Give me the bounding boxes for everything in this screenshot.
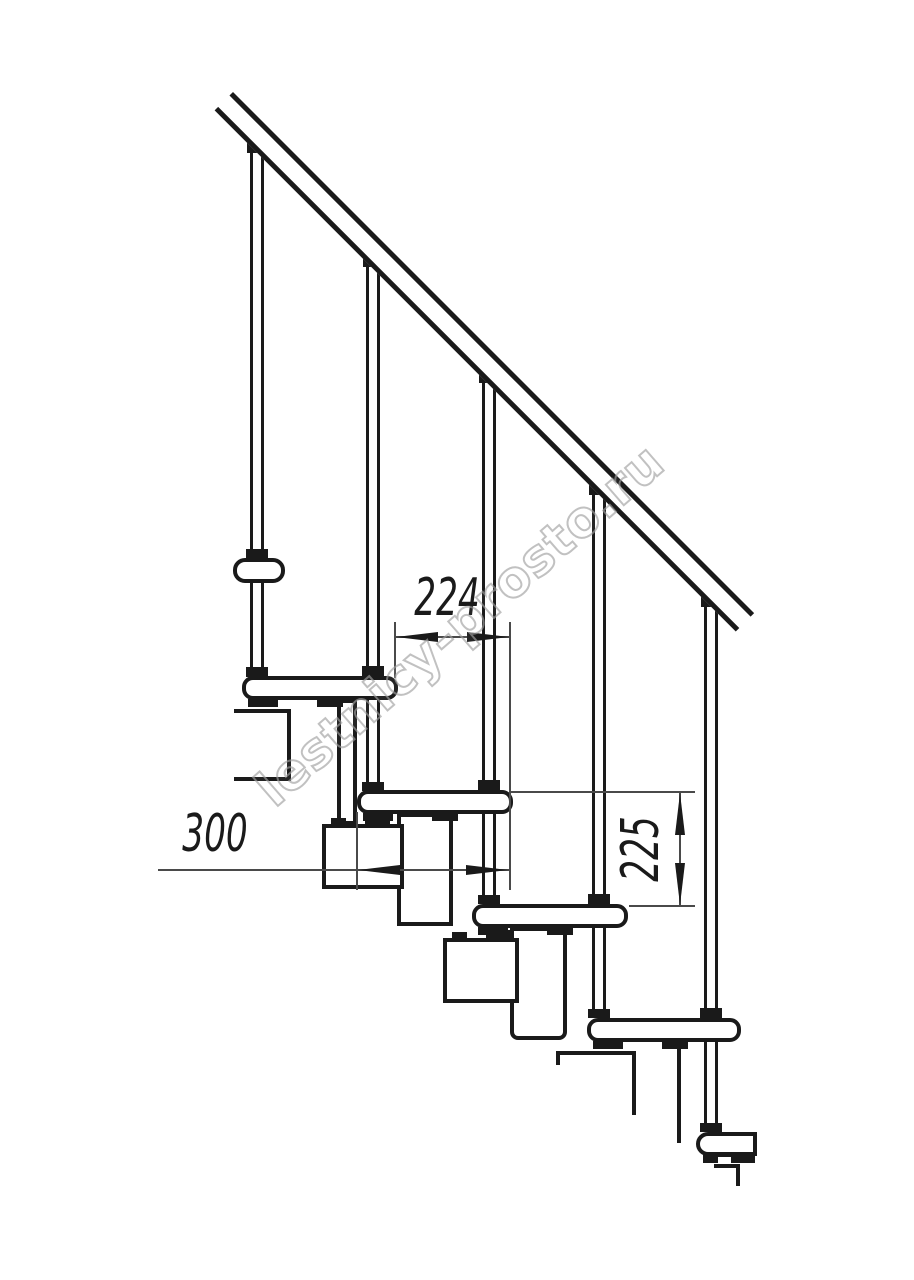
module-box-4-top-line xyxy=(556,1051,636,1055)
platform-2-bracket-right xyxy=(432,813,458,821)
platform-4-bracket-left xyxy=(593,1041,623,1049)
baluster-2-rod xyxy=(366,266,380,667)
dim-225-ext-bottom xyxy=(629,905,695,907)
module-box-5-right-line xyxy=(736,1164,740,1186)
step-platform-2 xyxy=(357,790,513,814)
platform-1-bracket-left xyxy=(248,699,278,707)
baluster-4-collar-upper xyxy=(588,894,610,904)
platform-3-bracket-right xyxy=(547,927,573,935)
baluster-5-rod-lower xyxy=(704,1041,718,1124)
module-column-4-right-line xyxy=(677,1041,681,1143)
dim-300-arrow-right xyxy=(466,865,508,875)
platform-5-bracket-notch xyxy=(718,1157,731,1163)
dim-225-arrow-up xyxy=(675,793,685,835)
dim-225-label: 225 xyxy=(615,813,667,886)
baluster-1-rod-lower xyxy=(250,583,264,668)
dim-300-arrow-left xyxy=(358,865,400,875)
upper-module-top-line xyxy=(234,709,291,713)
platform-4-bracket-right xyxy=(662,1041,688,1049)
baluster-4-rod-lower xyxy=(592,927,606,1010)
baluster-3-collar-lower xyxy=(478,895,500,904)
module-box-3 xyxy=(443,938,519,1003)
step-platform-5 xyxy=(696,1132,757,1156)
module-box-3-bolt-left xyxy=(452,932,467,940)
module-box-4-left-stub xyxy=(556,1051,560,1065)
dim-225-ext-top xyxy=(511,791,695,793)
platform-2-bracket-left xyxy=(363,813,393,821)
module-box-2-bolt-left xyxy=(331,818,346,826)
baluster-5-collar-lower xyxy=(700,1123,722,1132)
staircase-technical-drawing: 224 300 225 lestnicy-prosto.ru xyxy=(0,0,914,1280)
baluster-1-rod xyxy=(250,151,264,558)
module-box-4-right-line xyxy=(632,1051,636,1115)
step-platform-3 xyxy=(472,904,628,928)
module-box-2 xyxy=(322,824,404,889)
baluster-3-collar-upper xyxy=(478,780,500,790)
baluster-5-collar-upper xyxy=(700,1008,722,1018)
step-platform-0-edge xyxy=(233,558,285,583)
baluster-5-rod xyxy=(704,606,718,1008)
platform-3-bracket-left xyxy=(478,927,508,935)
baluster-4-collar-lower xyxy=(588,1009,610,1018)
dim-300-ext-left xyxy=(356,812,358,890)
baluster-3-rod-lower xyxy=(482,813,496,896)
dim-224-ext-right xyxy=(509,622,511,890)
step-platform-4 xyxy=(587,1018,741,1042)
dim-225-arrow-down xyxy=(675,863,685,905)
